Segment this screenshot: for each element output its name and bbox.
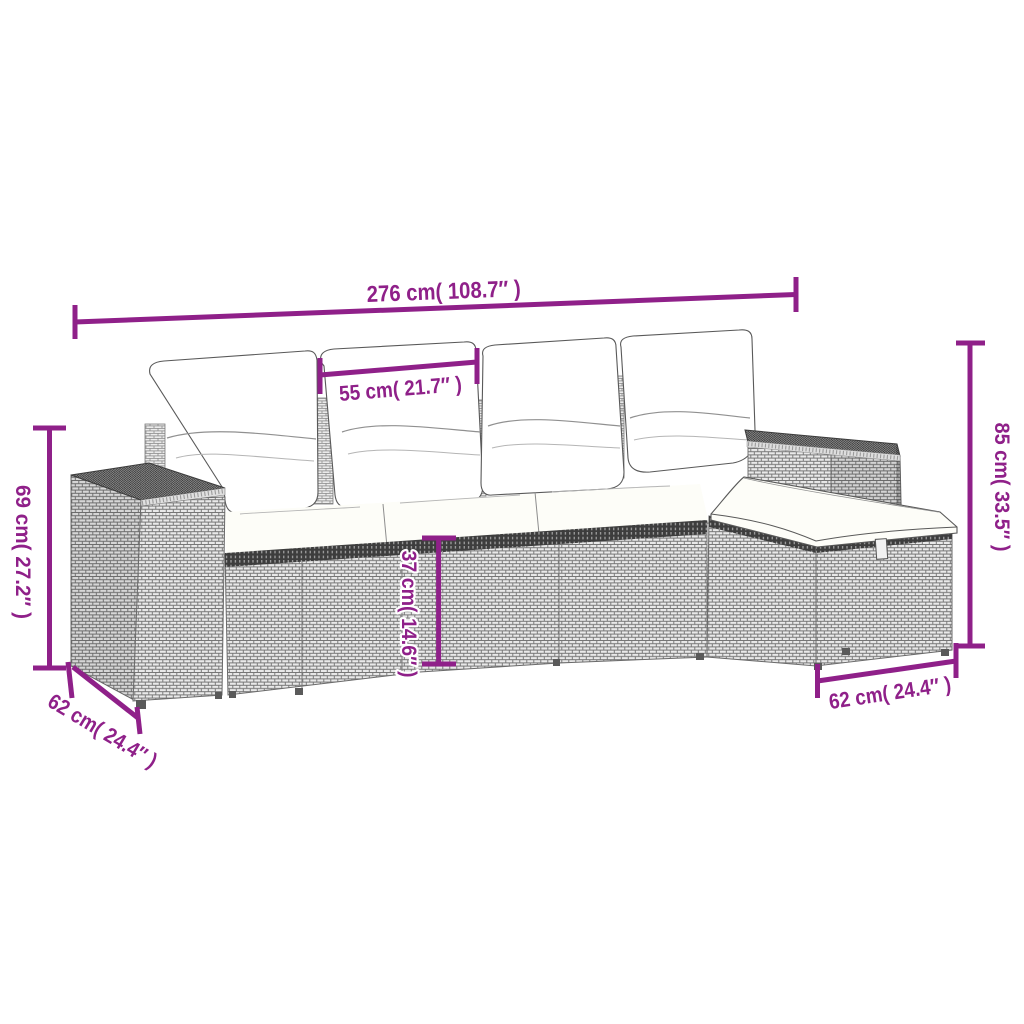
svg-text:69 cm( 27.2″ ): 69 cm( 27.2″ ) <box>11 485 35 619</box>
svg-text:37 cm( 14.6″ ): 37 cm( 14.6″ ) <box>397 551 421 678</box>
svg-text:85 cm( 33.5″ ): 85 cm( 33.5″ ) <box>990 423 1014 552</box>
